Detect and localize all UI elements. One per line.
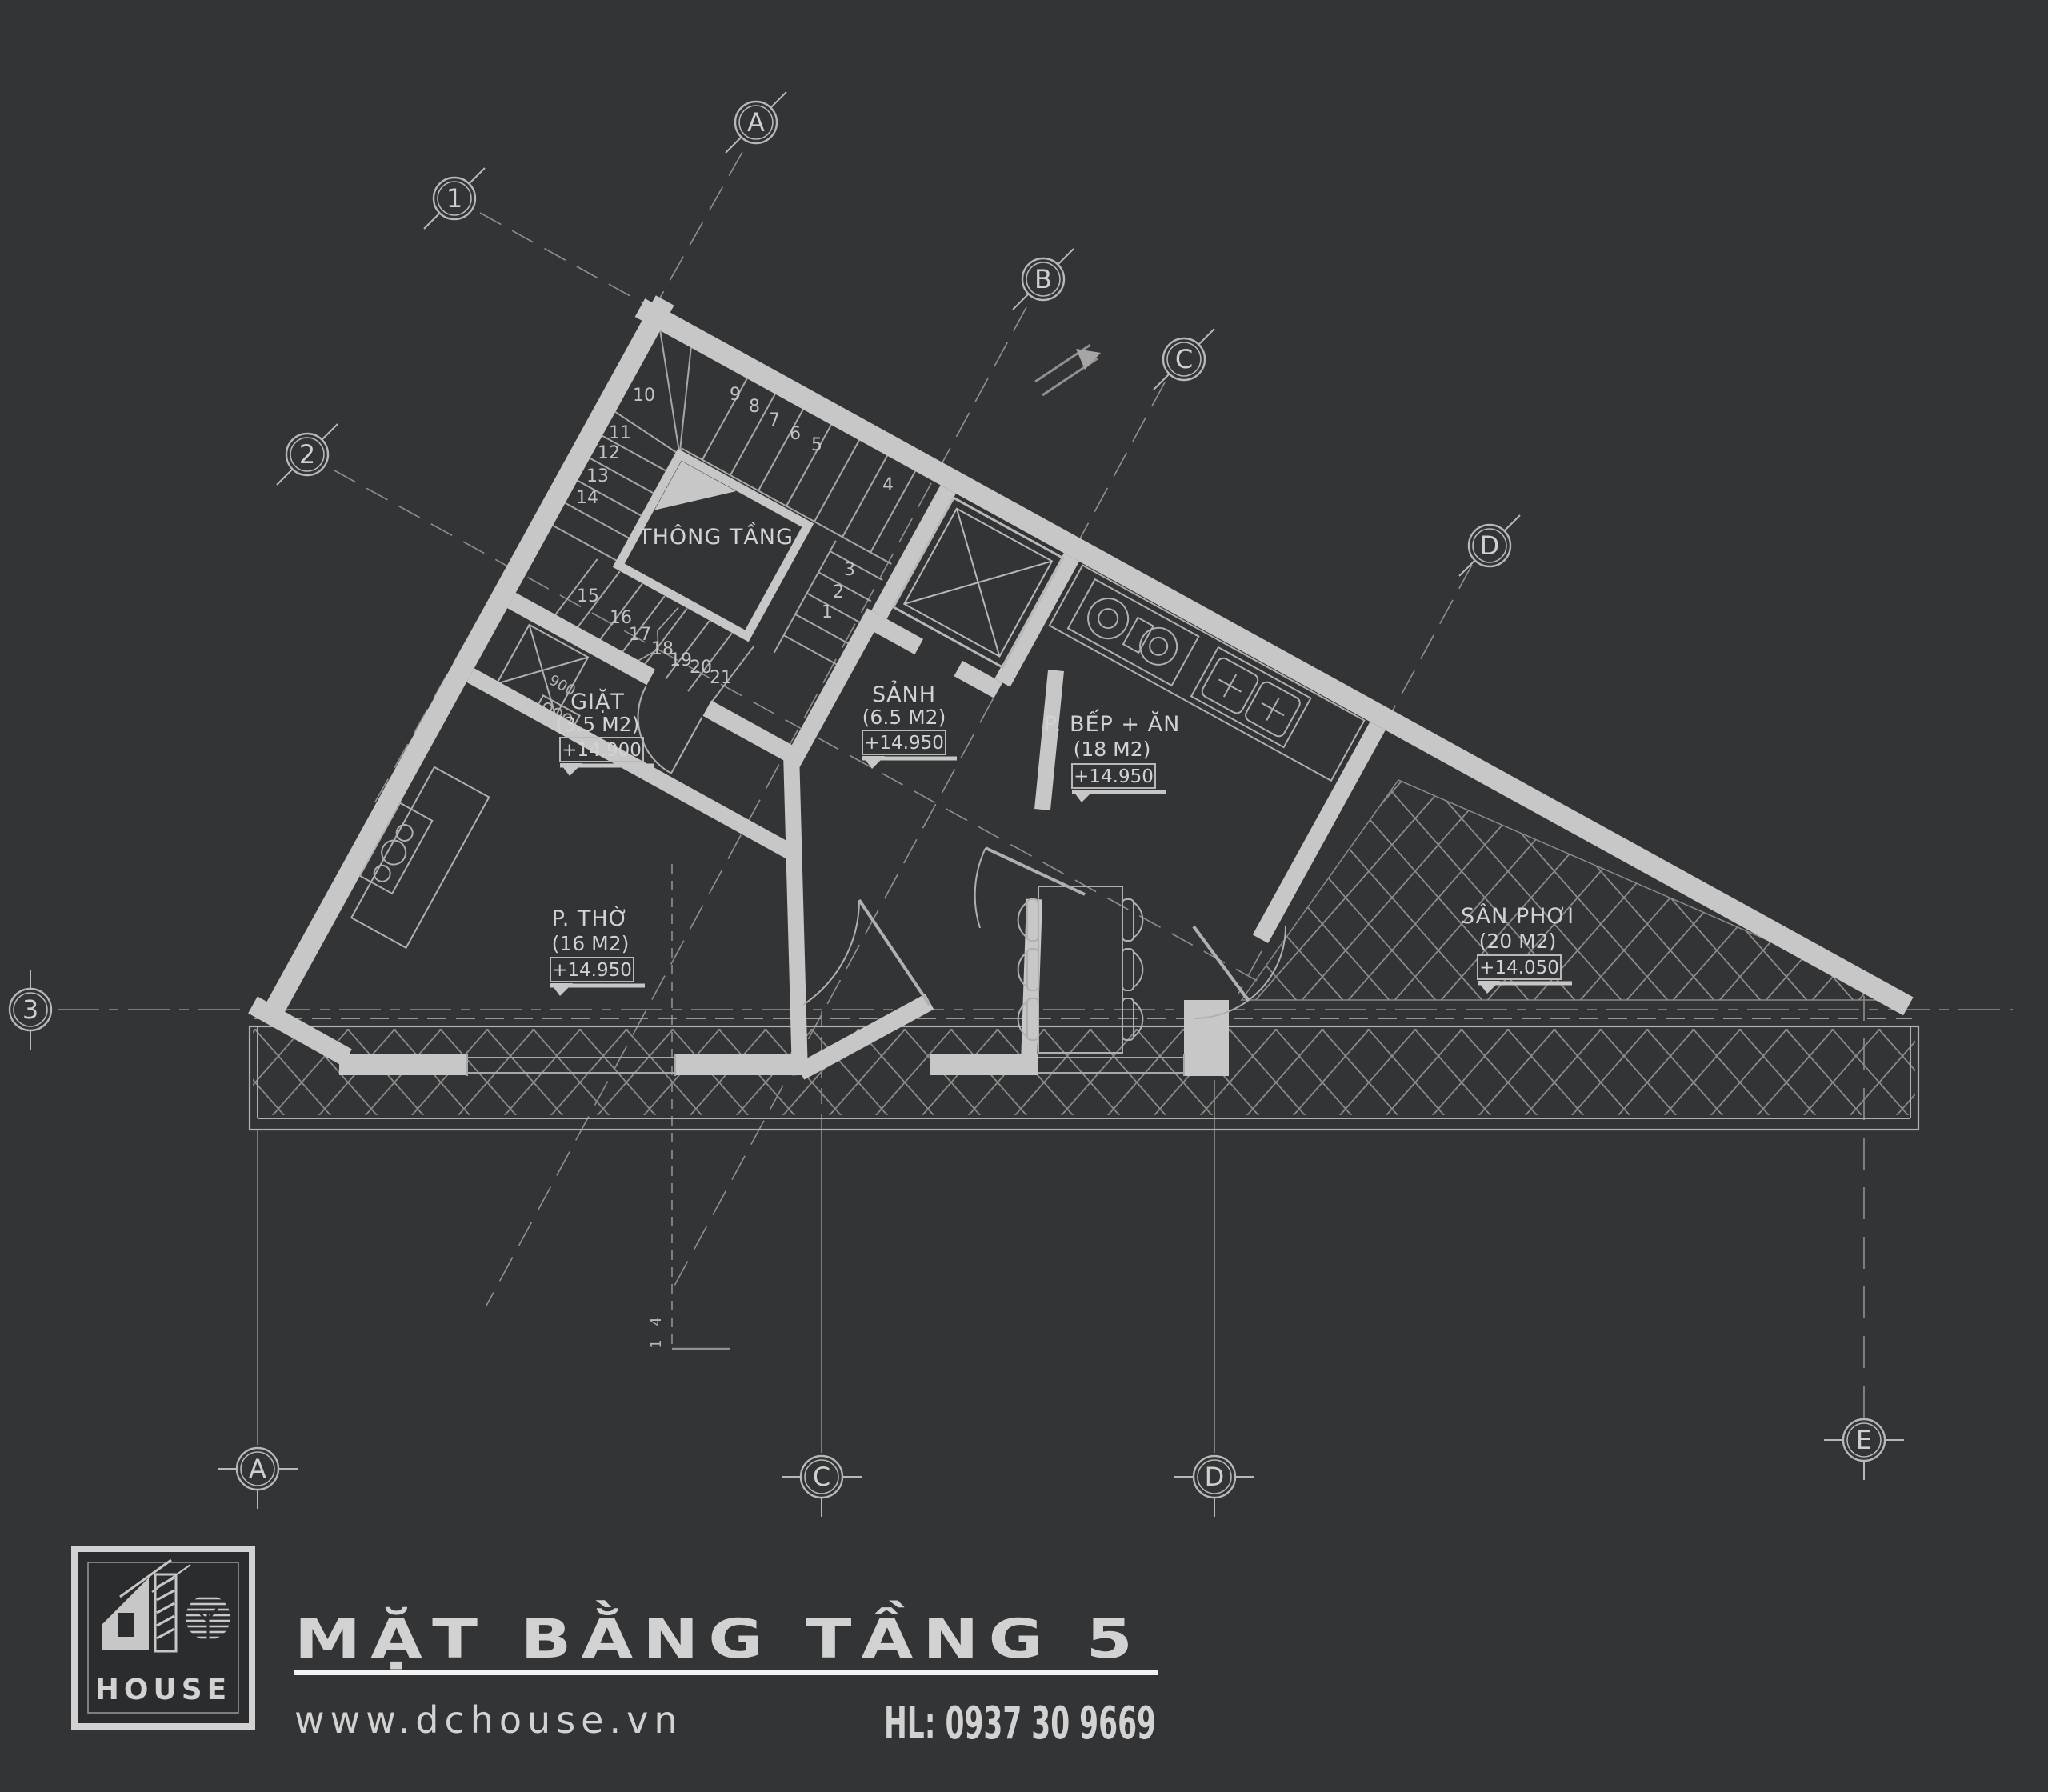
- stair-number: 7: [769, 410, 780, 430]
- svg-text:+14.950: +14.950: [864, 733, 944, 754]
- stair-number: 2: [833, 582, 844, 602]
- svg-text:D: D: [1205, 1462, 1225, 1492]
- svg-text:P. THỜ: P. THỜ: [552, 906, 630, 931]
- svg-text:A: A: [249, 1454, 266, 1484]
- stair-number: 3: [844, 560, 855, 580]
- hall-left-wall: [791, 752, 800, 1075]
- stair-number: 1: [822, 602, 833, 622]
- stair-number: 10: [633, 386, 655, 406]
- tree-icon: [186, 1595, 230, 1640]
- stair-number: 14: [576, 488, 598, 508]
- stair-number: 11: [609, 423, 631, 443]
- svg-text:(20 M2): (20 M2): [1479, 930, 1557, 953]
- stair-number: 15: [577, 586, 599, 606]
- svg-text:1: 1: [446, 183, 462, 214]
- svg-text:(6.5 M2): (6.5 M2): [862, 706, 946, 729]
- corner-column: [1184, 1000, 1229, 1076]
- svg-text:SẢNH: SẢNH: [872, 680, 936, 707]
- logo-text: HOUSE: [95, 1674, 231, 1706]
- stair-number: 5: [811, 435, 822, 455]
- floor-plan-drawing: 4 1: [0, 0, 2048, 1792]
- stair-number: 4: [882, 475, 894, 495]
- svg-text:SÂN PHƠI: SÂN PHƠI: [1461, 903, 1574, 929]
- svg-text:E: E: [1856, 1425, 1872, 1455]
- title-underline: [294, 1670, 1158, 1675]
- svg-text:B: B: [1034, 264, 1052, 294]
- stair-number: 19: [670, 650, 692, 670]
- stair-number: 17: [629, 625, 651, 645]
- stair-number: 8: [749, 397, 760, 417]
- svg-text:(3.5 M2): (3.5 M2): [556, 713, 640, 736]
- svg-text:+14.050: +14.050: [1479, 958, 1559, 978]
- svg-text:+14.900: +14.900: [562, 740, 642, 761]
- svg-text:(18 M2): (18 M2): [1074, 738, 1151, 761]
- website-text: www.dchouse.vn: [294, 1698, 682, 1742]
- stair-number: 13: [586, 466, 609, 486]
- svg-text:+14.950: +14.950: [552, 960, 632, 981]
- svg-text:2: 2: [299, 439, 315, 470]
- svg-text:3: 3: [22, 994, 38, 1025]
- stair-number: 9: [730, 385, 741, 405]
- svg-text:A: A: [747, 107, 765, 138]
- room-label-void: THÔNG TẦNG: [638, 522, 794, 550]
- floor-plan-sheet: 4 1: [0, 0, 2048, 1792]
- stair-number: 6: [790, 424, 801, 444]
- stair-number: 21: [710, 668, 732, 688]
- sheet-title: MẶT BẰNG TẦNG 5: [294, 1600, 1142, 1671]
- svg-text:P. BẾP + ĂN: P. BẾP + ĂN: [1044, 709, 1181, 737]
- svg-text:C: C: [813, 1462, 830, 1492]
- svg-text:(16 M2): (16 M2): [552, 932, 630, 955]
- svg-text:D: D: [1480, 530, 1500, 561]
- section-label-top: 4: [648, 1317, 665, 1326]
- svg-text:C: C: [1175, 344, 1193, 374]
- terrace-strip: [250, 1018, 1918, 1130]
- svg-text:GIẶT: GIẶT: [570, 688, 625, 714]
- svg-text:+14.950: +14.950: [1074, 766, 1154, 787]
- background: [0, 0, 2048, 1792]
- stair-number: 20: [690, 658, 712, 678]
- hotline-text: HL: 0937 30 9669: [884, 1697, 1156, 1749]
- section-label-bottom: 1: [648, 1339, 665, 1348]
- stair-number: 12: [598, 443, 620, 463]
- company-logo: HOUSE: [74, 1549, 252, 1726]
